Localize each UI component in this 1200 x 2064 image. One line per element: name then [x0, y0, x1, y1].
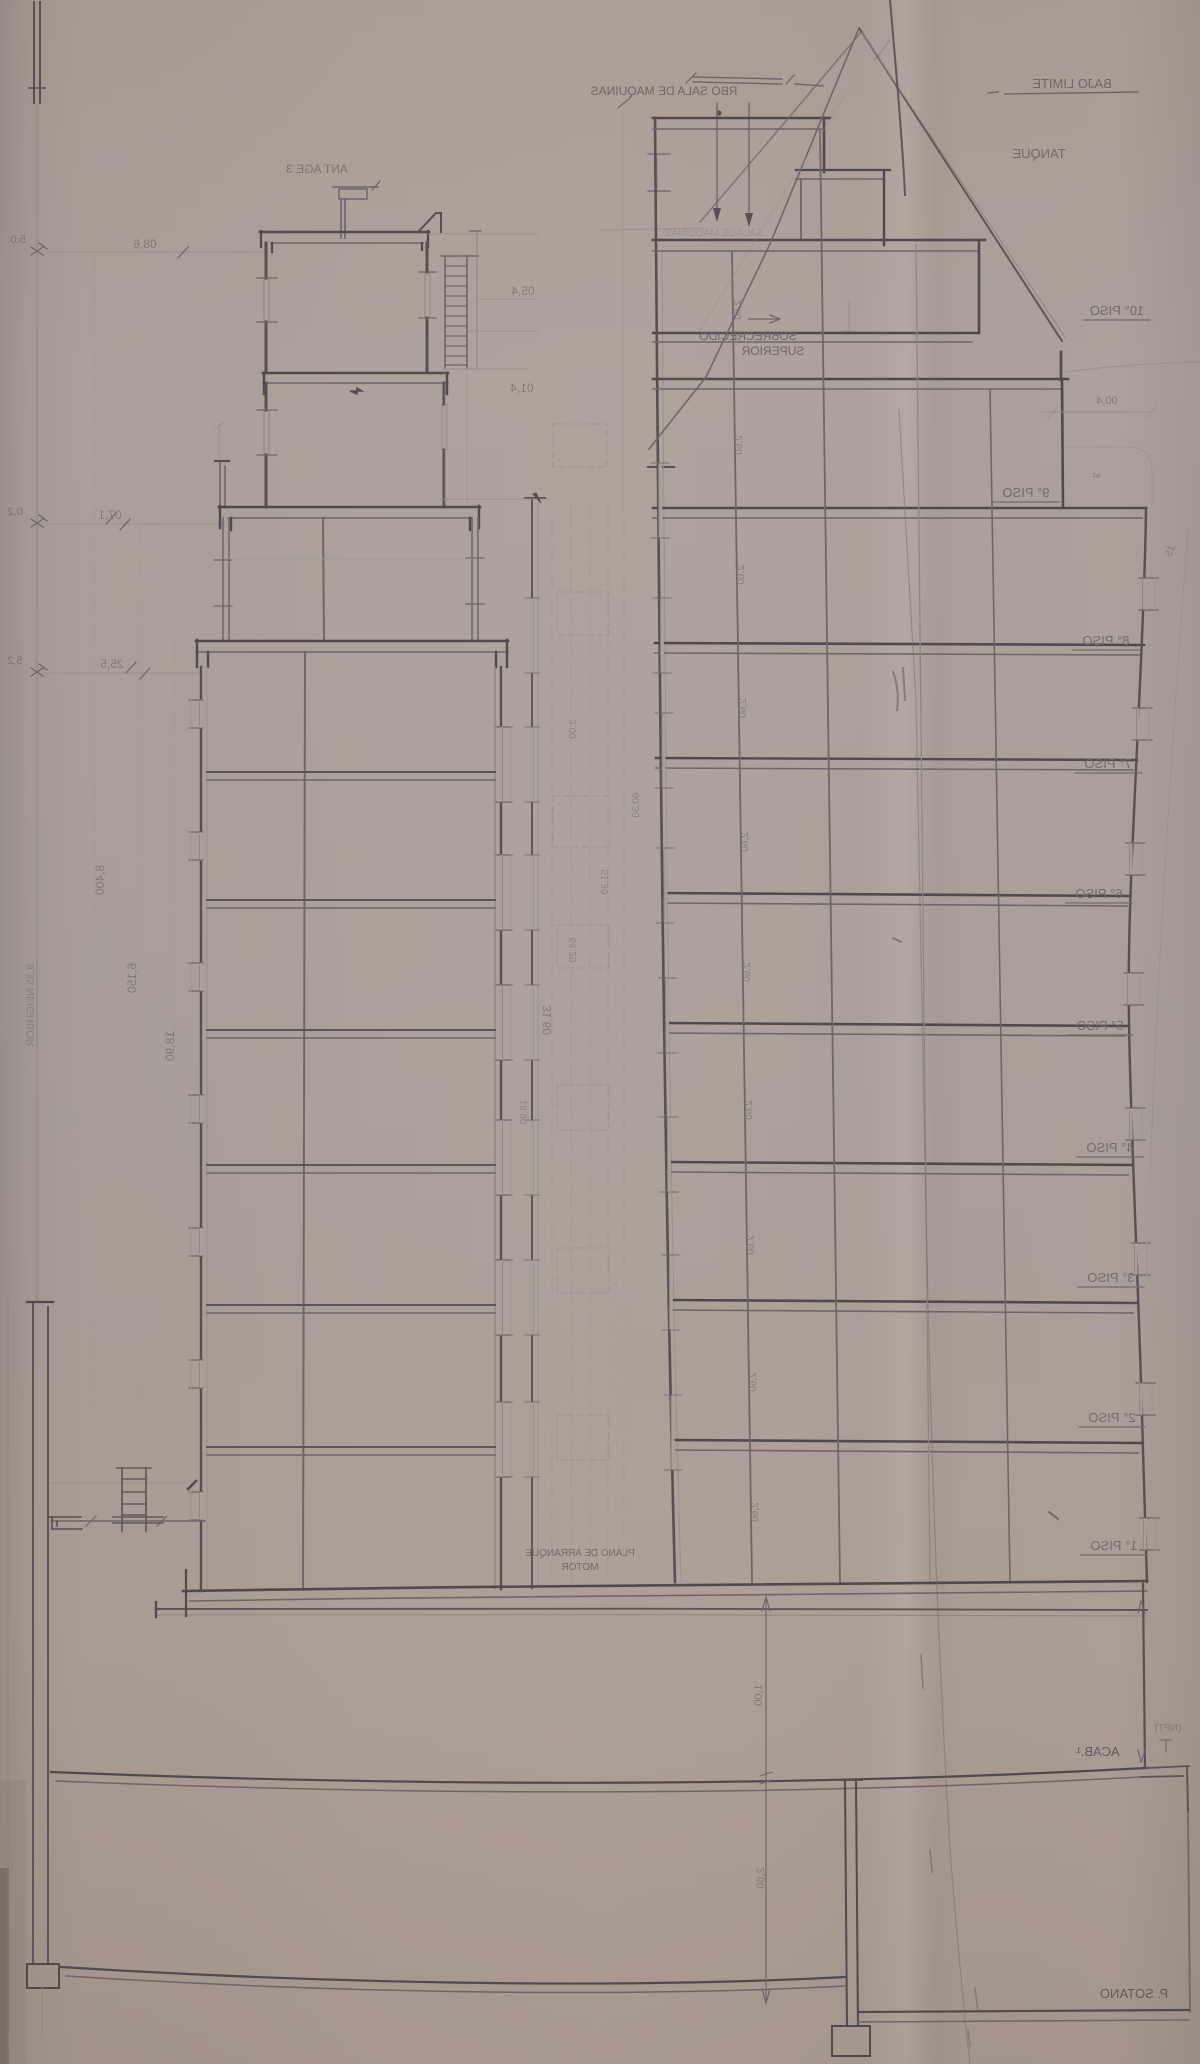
svg-text:01,4: 01,4: [510, 381, 534, 395]
svg-text:2,60: 2,60: [748, 1372, 759, 1392]
svg-text:3,00: 3,00: [568, 719, 579, 739]
svg-text:31,60: 31,60: [540, 1005, 554, 1035]
svg-text:PLANO DE ARRANQUE: PLANO DE ARRANQUE: [525, 1548, 635, 1559]
svg-text:ANT AGE 3: ANT AGE 3: [286, 162, 348, 176]
svg-text:5,0: 5,0: [10, 234, 25, 246]
svg-text:10° PISO: 10° PISO: [1090, 303, 1144, 318]
svg-text:SALA DE MAQUINAS: SALA DE MAQUINAS: [665, 228, 763, 239]
svg-text:8° PISO: 8° PISO: [1082, 633, 1129, 648]
svg-text:5,2: 5,2: [7, 655, 22, 667]
svg-text:2,60: 2,60: [744, 1100, 755, 1120]
svg-text:BAJO LIMITE: BAJO LIMITE: [1032, 76, 1112, 91]
svg-text:5° PISO: 5° PISO: [1076, 1018, 1123, 1033]
svg-text:00,4: 00,4: [1096, 395, 1117, 407]
svg-text:05,4: 05,4: [511, 284, 535, 298]
svg-text:7° PISO: 7° PISO: [1084, 756, 1131, 771]
svg-text:SUPERIOR: SUPERIOR: [741, 344, 804, 358]
svg-text:4° PISO: 4° PISO: [1086, 1140, 1133, 1155]
svg-text:64,20: 64,20: [568, 937, 579, 962]
svg-text:2,60: 2,60: [746, 1235, 757, 1255]
svg-text:18,90: 18,90: [519, 1099, 530, 1124]
svg-text:08,6: 08,6: [133, 237, 157, 251]
svg-text:2,60: 2,60: [755, 1867, 767, 1888]
svg-text:0,2: 0,2: [7, 506, 22, 518]
svg-text:2,60: 2,60: [738, 698, 749, 718]
svg-text:2,60: 2,60: [734, 435, 745, 455]
svg-text:RBO SALA DE MAQUINAS: RBO SALA DE MAQUINAS: [591, 84, 738, 98]
svg-text:P. SOTANO: P. SOTANO: [1100, 1986, 1168, 2001]
svg-text:3° PISO: 3° PISO: [1087, 1270, 1134, 1285]
svg-text:60,30: 60,30: [631, 792, 642, 817]
svg-text:SOBRECRECIDO: SOBRECRECIDO: [699, 329, 796, 343]
svg-text:(‌NPT): (‌NPT): [1155, 1723, 1182, 1734]
svg-text:2,60: 2,60: [750, 1502, 761, 1522]
svg-text:ACAB.¹: ACAB.¹: [1076, 1744, 1120, 1759]
svg-text:2,60: 2,60: [740, 832, 751, 852]
svg-text:51,30: 51,30: [600, 869, 611, 894]
svg-text:1,00: 1,00: [753, 1684, 765, 1705]
svg-text:2° PISO: 2° PISO: [1088, 1410, 1135, 1425]
svg-text:9,35 NEIGHBOR: 9,35 NEIGHBOR: [25, 963, 37, 1046]
svg-text:3: 3: [1092, 472, 1103, 478]
svg-text:8,400: 8,400: [93, 865, 107, 895]
svg-text:2,60: 2,60: [742, 962, 753, 982]
svg-text:6° PISO: 6° PISO: [1075, 886, 1122, 901]
svg-text:9° PISO: 9° PISO: [1002, 485, 1049, 500]
svg-text:18,90: 18,90: [163, 1031, 177, 1061]
svg-text:TANQUE: TANQUE: [1012, 146, 1066, 161]
svg-text:MOTOR: MOTOR: [561, 1562, 598, 1573]
svg-text:25,5: 25,5: [100, 657, 124, 671]
svg-text:2,60: 2,60: [736, 565, 747, 585]
svg-text:6,150: 6,150: [125, 963, 139, 993]
svg-text:1° PISO: 1° PISO: [1090, 1538, 1137, 1553]
